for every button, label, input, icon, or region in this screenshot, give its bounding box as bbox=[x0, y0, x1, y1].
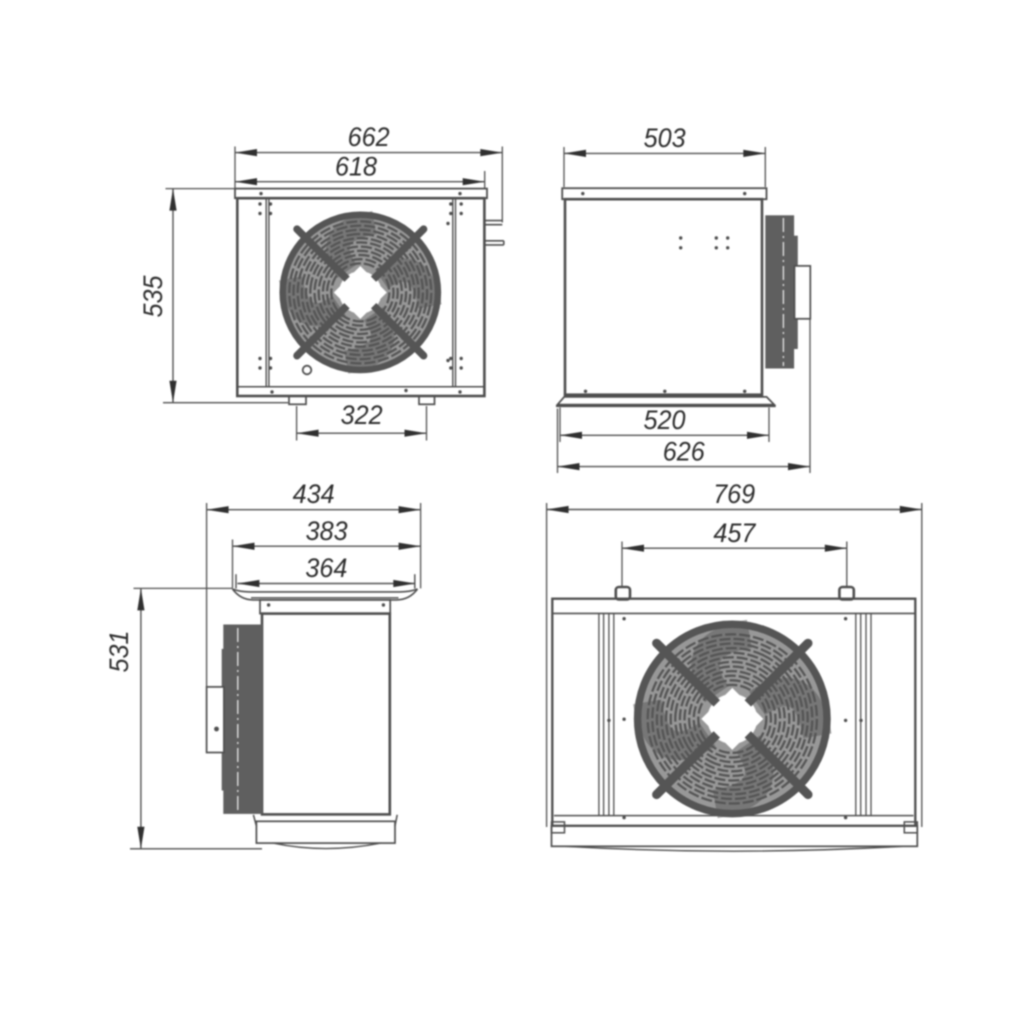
svg-text:364: 364 bbox=[305, 553, 347, 583]
svg-text:457: 457 bbox=[713, 518, 756, 548]
svg-text:434: 434 bbox=[293, 479, 335, 509]
svg-text:520: 520 bbox=[644, 405, 686, 435]
svg-text:322: 322 bbox=[341, 400, 383, 430]
svg-text:503: 503 bbox=[644, 123, 686, 153]
svg-text:383: 383 bbox=[306, 516, 348, 546]
svg-text:535: 535 bbox=[138, 275, 168, 318]
svg-text:626: 626 bbox=[663, 437, 706, 467]
svg-text:531: 531 bbox=[104, 631, 134, 673]
svg-text:769: 769 bbox=[713, 479, 755, 509]
svg-text:662: 662 bbox=[348, 122, 390, 152]
svg-text:618: 618 bbox=[335, 152, 377, 182]
